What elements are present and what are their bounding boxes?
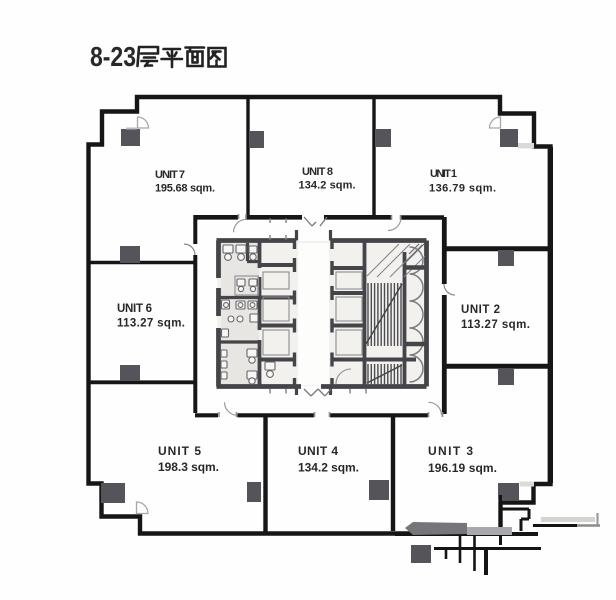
svg-text:UNIT 1: UNIT 1 [430,168,457,180]
svg-text:UNIT 3: UNIT 3 [428,444,473,458]
svg-text:UNIT 6: UNIT 6 [117,303,152,315]
svg-text:UNIT 2: UNIT 2 [461,304,500,316]
svg-text:UNIT 5: UNIT 5 [158,444,201,458]
svg-text:198.3 sqm.: 198.3 sqm. [158,460,219,474]
svg-text:196.19 sqm.: 196.19 sqm. [428,461,497,475]
svg-text:8-23: 8-23 [90,41,136,72]
svg-text:134.2 sqm.: 134.2 sqm. [299,180,356,192]
svg-text:UNIT 4: UNIT 4 [298,444,338,458]
svg-text:136.79 sqm.: 136.79 sqm. [429,183,496,195]
svg-text:134.2 sqm.: 134.2 sqm. [298,461,359,475]
svg-text:113.27 sqm.: 113.27 sqm. [117,318,185,330]
svg-text:195.68 sqm.: 195.68 sqm. [155,183,215,195]
svg-text:UNIT 7: UNIT 7 [155,169,185,181]
svg-text:UNIT 8: UNIT 8 [302,166,333,178]
svg-text:113.27 sqm.: 113.27 sqm. [461,319,530,331]
